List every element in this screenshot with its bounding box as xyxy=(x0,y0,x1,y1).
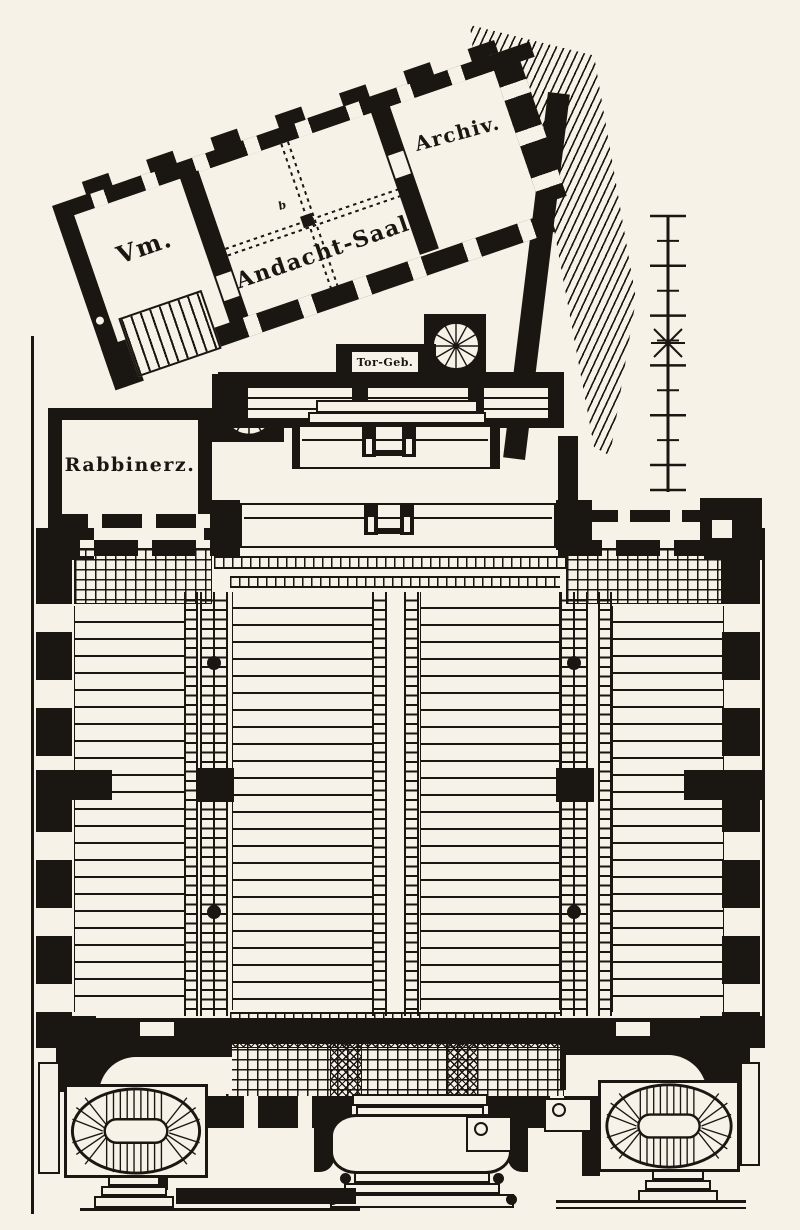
lobby-upper-step xyxy=(352,1094,488,1106)
ark-upper-step xyxy=(308,412,486,424)
stair-exit-step xyxy=(652,1170,704,1180)
base-line xyxy=(556,1207,746,1209)
base-line xyxy=(80,1208,360,1211)
stair-exit-step xyxy=(645,1180,711,1190)
column xyxy=(567,905,581,919)
tile-band xyxy=(214,556,566,569)
round-fixture-icon xyxy=(474,1122,488,1136)
aisle-ladder xyxy=(598,592,612,1016)
oval-stair-icon xyxy=(600,1082,738,1170)
stair-exit-step xyxy=(108,1176,160,1186)
wall-stub-east xyxy=(684,770,764,800)
door-jamb xyxy=(402,427,416,457)
oval-stair-icon xyxy=(66,1086,206,1176)
entrance-step xyxy=(344,1183,500,1194)
column xyxy=(339,1031,353,1045)
bollard xyxy=(493,1173,504,1184)
door-jamb xyxy=(362,427,376,457)
vestibule-hatch-strip xyxy=(226,1028,564,1048)
corner-notch xyxy=(712,520,732,538)
spiral-stair-icon xyxy=(430,320,482,372)
platform-end xyxy=(492,425,500,469)
entrance-step xyxy=(354,1172,490,1183)
door-jamb xyxy=(364,505,378,535)
pew-block-center-left xyxy=(232,592,374,1010)
platform-line xyxy=(302,439,488,441)
base-line xyxy=(556,1200,746,1203)
rabbi-room-label: Rabbinerz. xyxy=(62,448,198,482)
aisle-ladder xyxy=(404,592,419,1016)
jamb-sill xyxy=(376,450,402,456)
property-line xyxy=(31,336,34,1214)
small-room xyxy=(466,1116,512,1152)
pew-block-left xyxy=(74,606,186,1012)
wall-stub-west xyxy=(36,770,112,800)
ark-platform-upper xyxy=(298,425,492,469)
column xyxy=(207,905,221,919)
column xyxy=(454,1031,468,1045)
stair-exit-step xyxy=(101,1186,167,1196)
aisle-ladder xyxy=(372,592,387,1016)
platform-line xyxy=(244,517,552,519)
pier-block xyxy=(196,768,234,802)
entrance-step xyxy=(330,1194,514,1208)
column xyxy=(567,656,581,670)
scale-bar-icon xyxy=(636,208,700,500)
wall-below-rabbi xyxy=(48,514,212,528)
tile-band xyxy=(230,576,560,588)
floor-plan: Vm. b Andacht-Saal Archiv. xyxy=(0,0,800,1230)
annex-wing: Vm. b Andacht-Saal Archiv. xyxy=(52,42,595,396)
pew-block-right xyxy=(612,606,724,1012)
tile-floor-ne xyxy=(566,548,722,604)
tile-band xyxy=(230,1012,560,1024)
bollard xyxy=(506,1194,517,1205)
east-court-wall xyxy=(558,436,578,536)
stair-exit-step xyxy=(94,1196,174,1208)
jamb-sill xyxy=(378,528,400,534)
pier-block xyxy=(556,768,594,802)
round-fixture-icon xyxy=(552,1103,566,1117)
ark-platform-lower xyxy=(240,503,556,548)
base-wall xyxy=(176,1188,356,1204)
column xyxy=(207,656,221,670)
outer-wall-slab xyxy=(38,1062,60,1174)
gate-label: Tor-Geb. xyxy=(350,350,420,374)
bollard xyxy=(340,1173,351,1184)
pew-block-center-right xyxy=(420,592,560,1010)
aisle-ladder xyxy=(184,592,198,1016)
door-jamb xyxy=(400,505,414,535)
small-room xyxy=(544,1098,592,1132)
outer-wall-slab xyxy=(740,1062,760,1166)
